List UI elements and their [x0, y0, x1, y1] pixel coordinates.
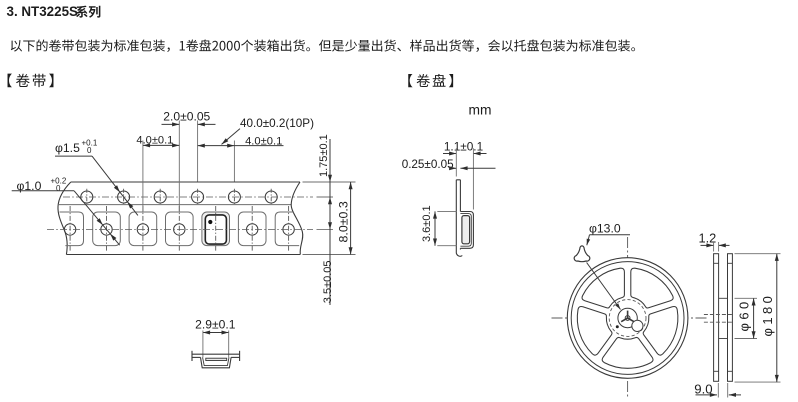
svg-text:2.9±0.1: 2.9±0.1 [195, 318, 236, 332]
svg-text:40.0±0.2(10P): 40.0±0.2(10P) [240, 117, 314, 130]
svg-text:1.75±0.1: 1.75±0.1 [318, 134, 330, 177]
svg-text:mm: mm [469, 103, 492, 118]
svg-text:φ180: φ180 [760, 293, 775, 337]
svg-text:2.0±0.05: 2.0±0.05 [163, 109, 210, 123]
svg-text:0: 0 [56, 184, 61, 193]
svg-text:3.6±0.1: 3.6±0.1 [421, 205, 433, 242]
svg-text:3. NT3225S: 3. NT3225S [7, 4, 79, 19]
svg-text:8.0±0.3: 8.0±0.3 [337, 201, 351, 242]
svg-text:3.5±0.05: 3.5±0.05 [322, 260, 334, 303]
svg-text:1.1±0.1: 1.1±0.1 [444, 140, 483, 154]
svg-text:φ13.0: φ13.0 [589, 222, 621, 236]
svg-text:0: 0 [87, 146, 92, 155]
svg-text:φ60: φ60 [737, 298, 752, 331]
svg-text:φ1.5: φ1.5 [55, 141, 80, 155]
svg-text:0.25±0.05: 0.25±0.05 [402, 158, 454, 171]
svg-text:4.0±0.1: 4.0±0.1 [136, 135, 173, 147]
